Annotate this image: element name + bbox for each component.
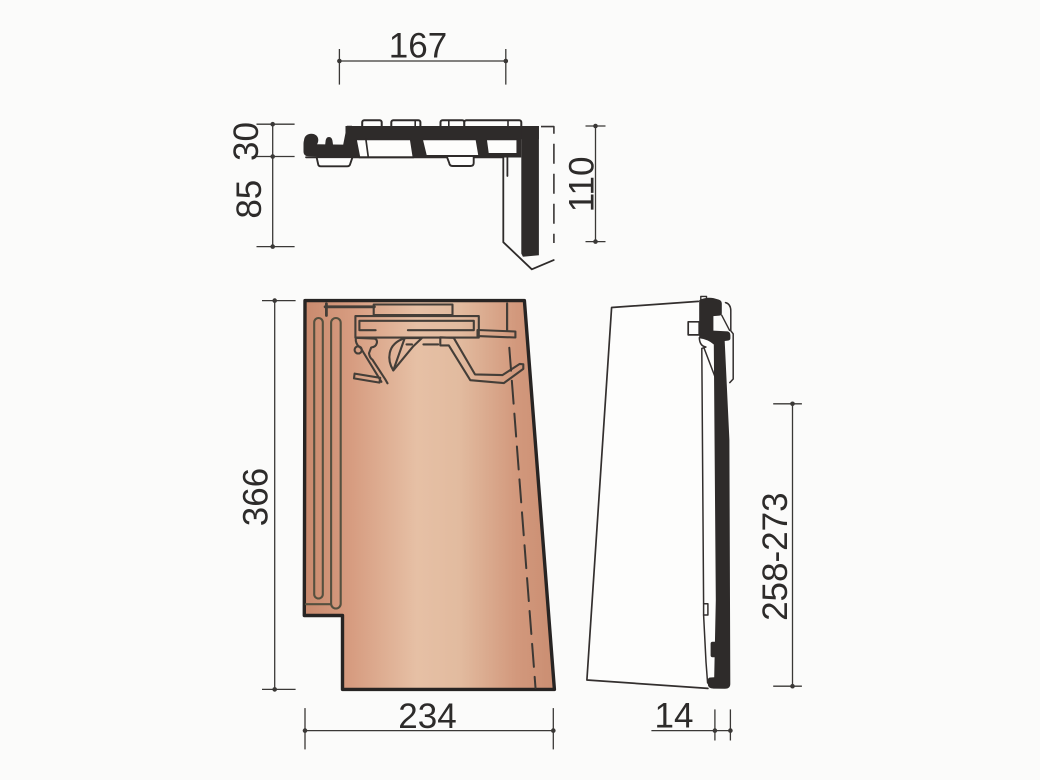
svg-text:14: 14: [655, 697, 694, 736]
svg-text:110: 110: [562, 156, 601, 212]
svg-text:85: 85: [230, 180, 269, 219]
svg-text:234: 234: [398, 697, 456, 736]
svg-text:167: 167: [389, 27, 447, 66]
svg-text:258-273: 258-273: [756, 492, 795, 620]
svg-text:30: 30: [227, 122, 266, 161]
svg-text:366: 366: [237, 468, 276, 526]
